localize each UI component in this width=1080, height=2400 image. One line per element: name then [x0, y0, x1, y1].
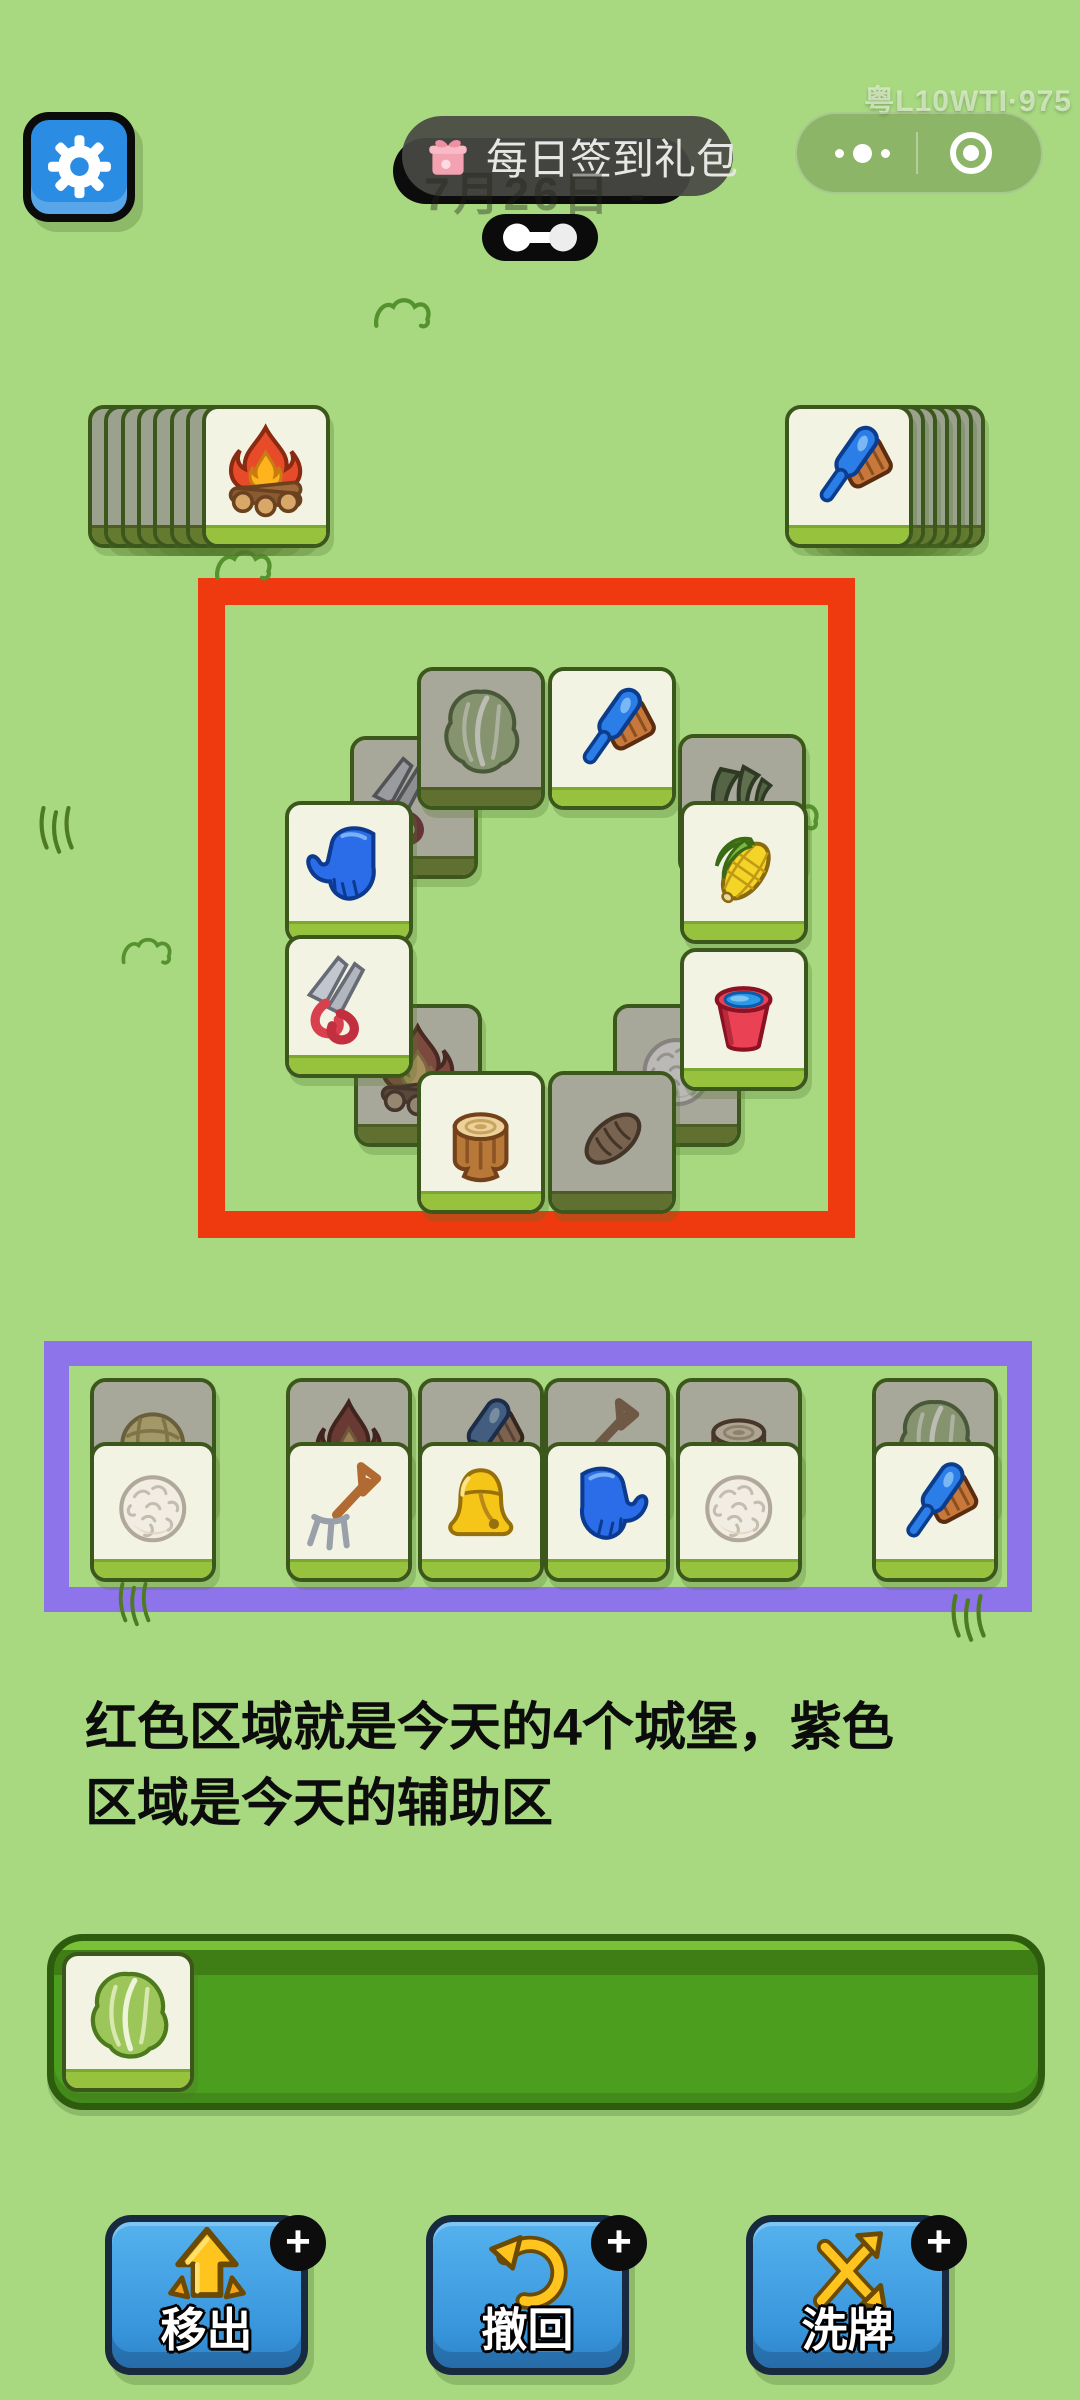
shuffle-button[interactable]: 洗牌 +: [746, 2215, 949, 2375]
move-out-label: 移出: [112, 2294, 301, 2360]
undo-label: 撤回: [433, 2294, 622, 2360]
undo-button[interactable]: 撤回 +: [426, 2215, 629, 2375]
move-out-button[interactable]: 移出 +: [105, 2215, 308, 2375]
shuffle-label: 洗牌: [753, 2294, 942, 2360]
slot-tiles: [0, 0, 1080, 2400]
cabbage-icon: [75, 1960, 182, 2074]
move-out-plus-badge[interactable]: +: [270, 2215, 326, 2271]
shuffle-plus-badge[interactable]: +: [911, 2215, 967, 2271]
slot-tile-cabbage: [62, 1952, 194, 2092]
undo-plus-badge[interactable]: +: [591, 2215, 647, 2271]
